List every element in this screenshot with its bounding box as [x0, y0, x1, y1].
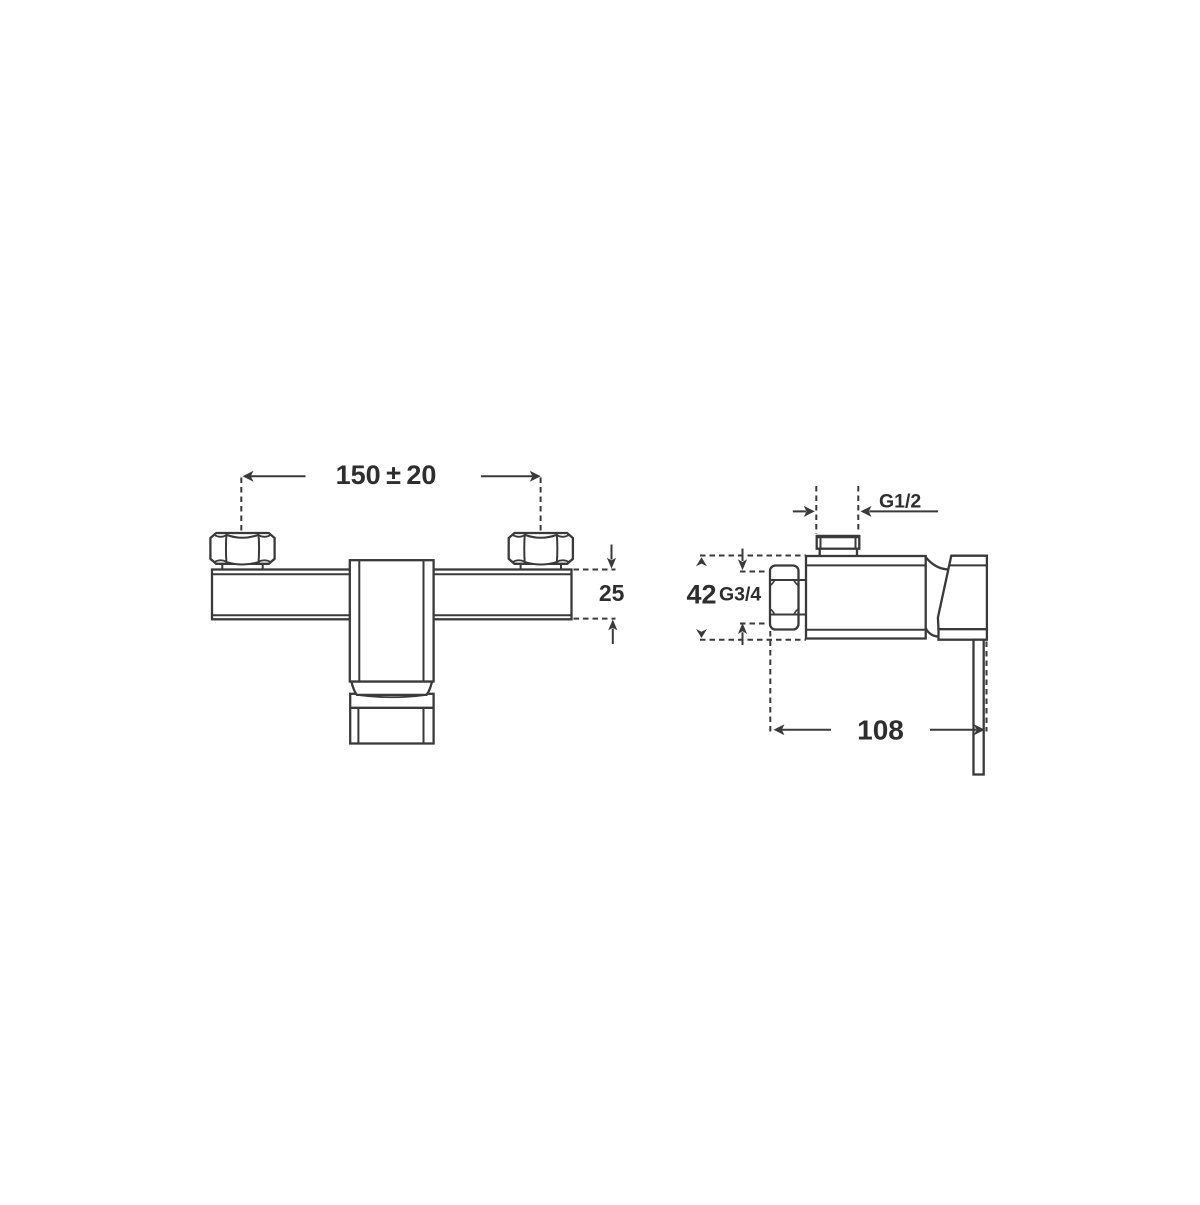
svg-text:150 ± 20: 150 ± 20: [336, 460, 437, 490]
svg-text:G1/2: G1/2: [879, 491, 921, 513]
svg-text:G3/4: G3/4: [719, 584, 761, 606]
svg-text:25: 25: [599, 580, 625, 606]
svg-text:42: 42: [687, 580, 717, 610]
svg-text:108: 108: [857, 715, 904, 746]
